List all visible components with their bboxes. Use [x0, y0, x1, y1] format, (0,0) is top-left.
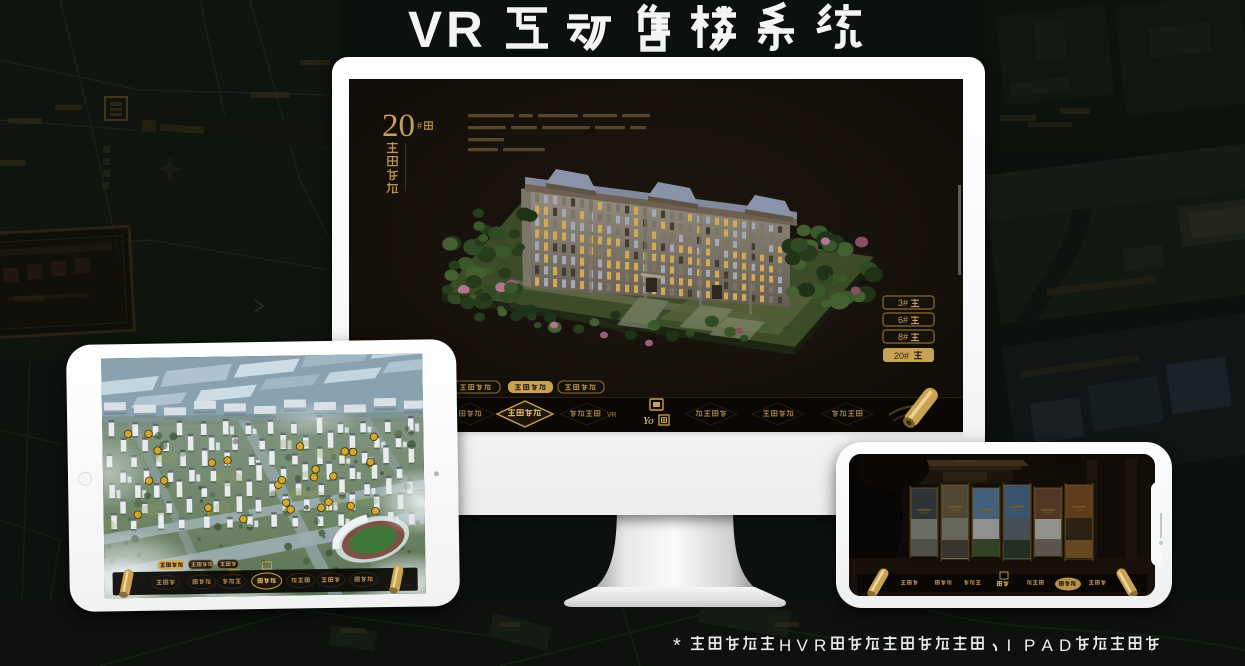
- svg-text:3#: 3#: [898, 298, 908, 308]
- svg-text:R: R: [814, 636, 826, 655]
- svg-text:8#: 8#: [898, 332, 908, 342]
- svg-text:20#: 20#: [894, 351, 909, 361]
- svg-text:6#: 6#: [898, 315, 908, 325]
- svg-text:D: D: [1059, 636, 1071, 655]
- svg-text:V: V: [797, 636, 809, 655]
- svg-text:VR: VR: [607, 412, 617, 419]
- svg-text:P: P: [1024, 636, 1035, 655]
- svg-text:20: 20: [382, 108, 415, 144]
- svg-text:VR: VR: [408, 1, 487, 58]
- svg-text:H: H: [779, 636, 791, 655]
- svg-text:Yo: Yo: [643, 415, 654, 427]
- svg-text:#: #: [417, 121, 422, 132]
- svg-text:*: *: [673, 635, 681, 657]
- svg-text:I: I: [1007, 636, 1012, 655]
- svg-text:A: A: [1042, 636, 1054, 655]
